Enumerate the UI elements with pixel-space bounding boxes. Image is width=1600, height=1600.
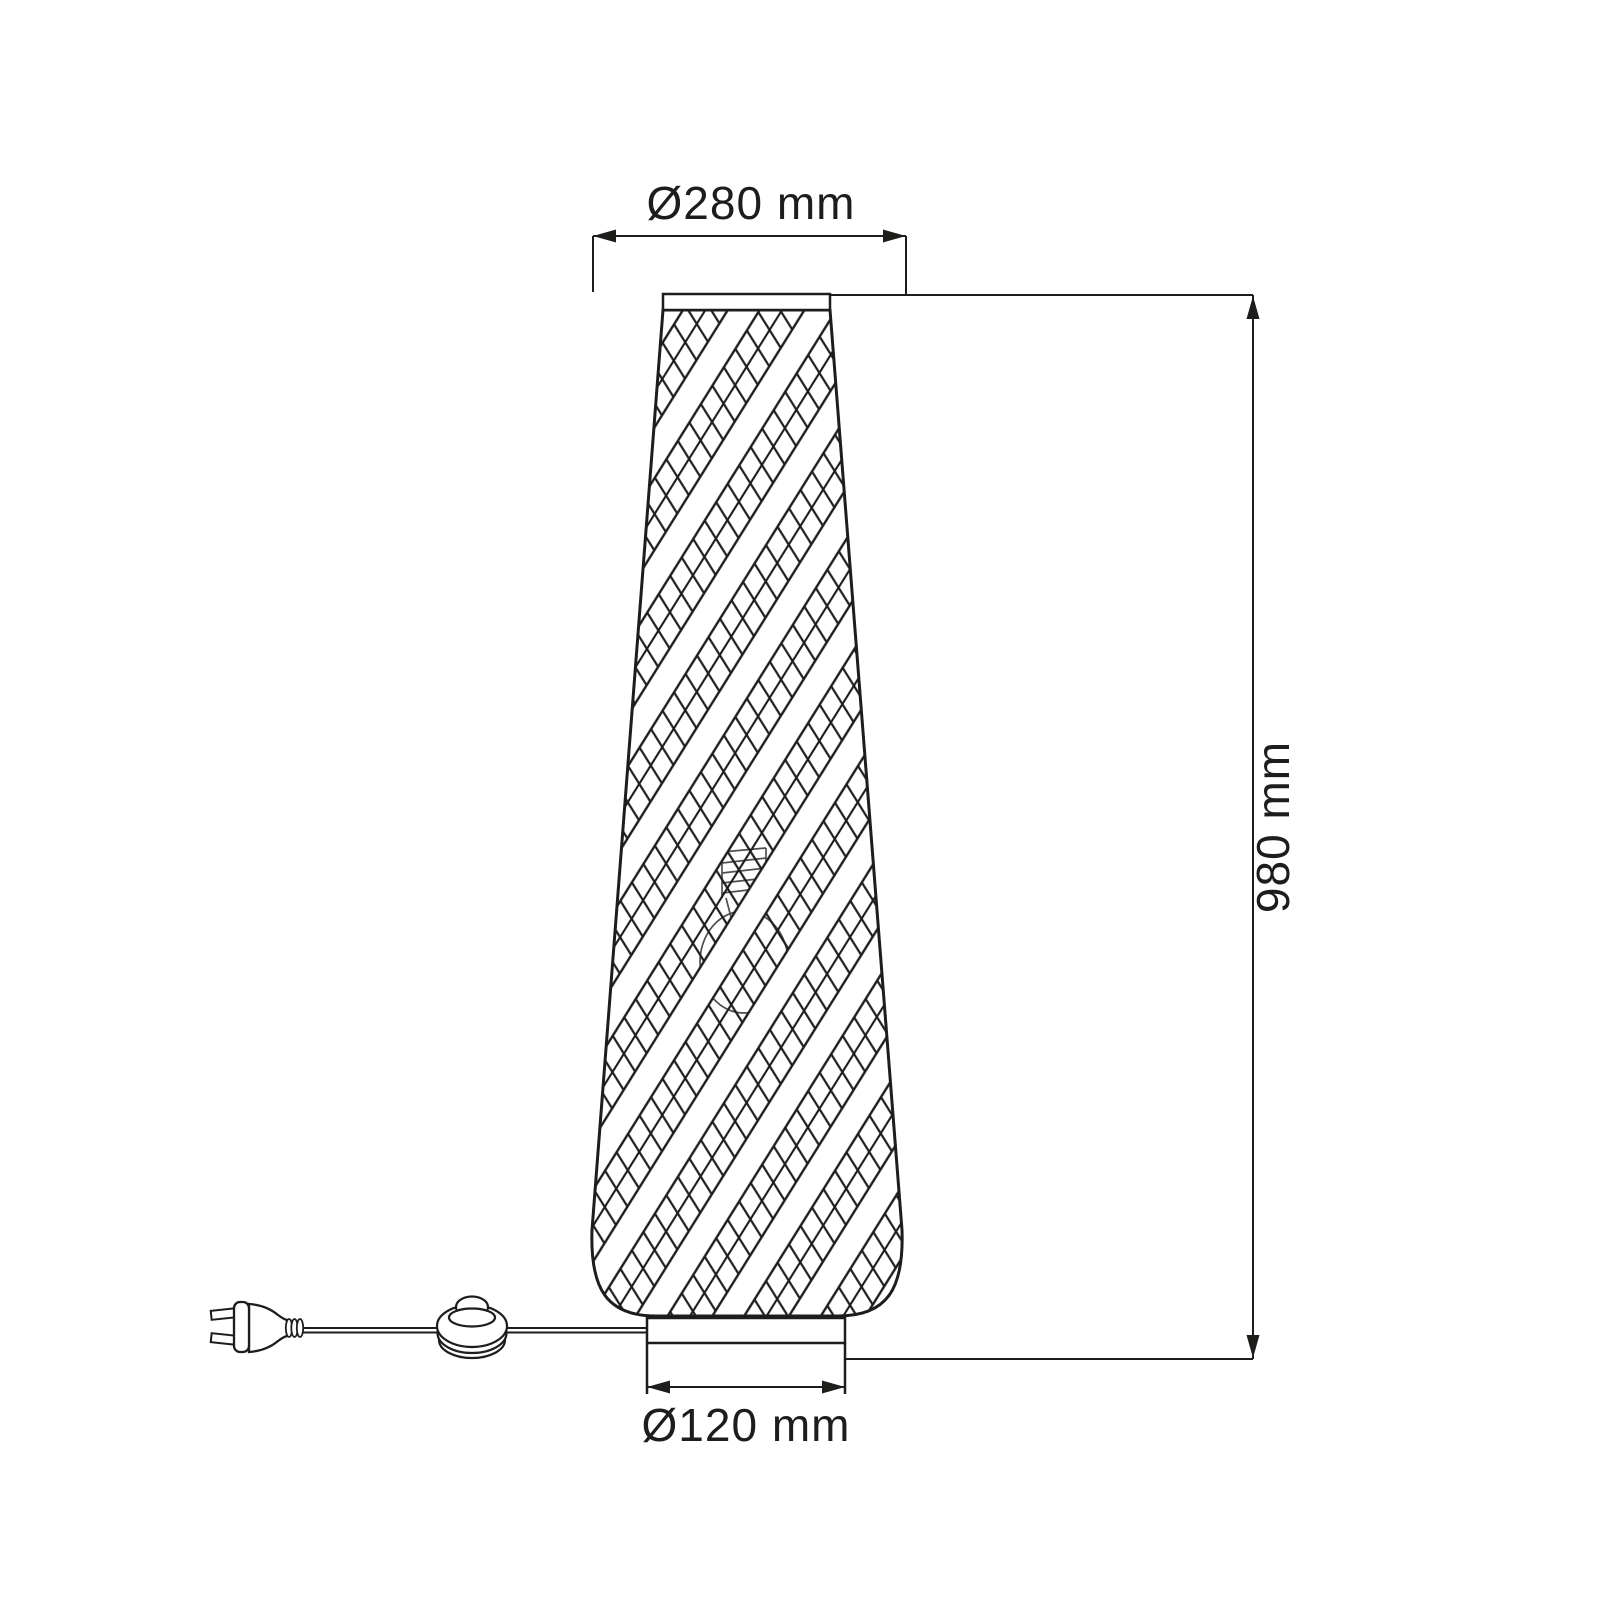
shade-ribbon-pattern [592, 310, 902, 1316]
foot-switch [437, 1297, 507, 1359]
floor-lamp-dimension-diagram: Ø280 mm 980 mm Ø120 mm [0, 0, 1600, 1600]
technical-drawing-canvas: Ø280 mm 980 mm Ø120 mm [0, 0, 1600, 1600]
lamp-shade [592, 294, 902, 1316]
base-diameter-label: Ø120 mm [642, 1399, 851, 1451]
base-collar [647, 1318, 845, 1343]
plug-body [249, 1304, 287, 1352]
height-label: 980 mm [1247, 741, 1299, 913]
arrowhead-right-icon [883, 230, 906, 243]
arrowhead-up-icon [1247, 296, 1260, 319]
power-plug [211, 1302, 303, 1352]
arrowhead-right-icon [822, 1381, 845, 1394]
dimension-base-diameter: Ø120 mm [642, 1381, 851, 1452]
arrowhead-down-icon [1247, 1335, 1260, 1358]
dimension-top-diameter: Ø280 mm [593, 177, 906, 295]
plug-face [234, 1302, 249, 1352]
plug-strain-relief [297, 1319, 303, 1337]
arrowhead-left-icon [593, 230, 616, 243]
lamp-base [647, 1318, 845, 1394]
arrowhead-left-icon [647, 1381, 670, 1394]
top-diameter-label: Ø280 mm [647, 177, 856, 229]
switch-button-ring [449, 1309, 495, 1327]
shade-top-cap [663, 294, 830, 310]
